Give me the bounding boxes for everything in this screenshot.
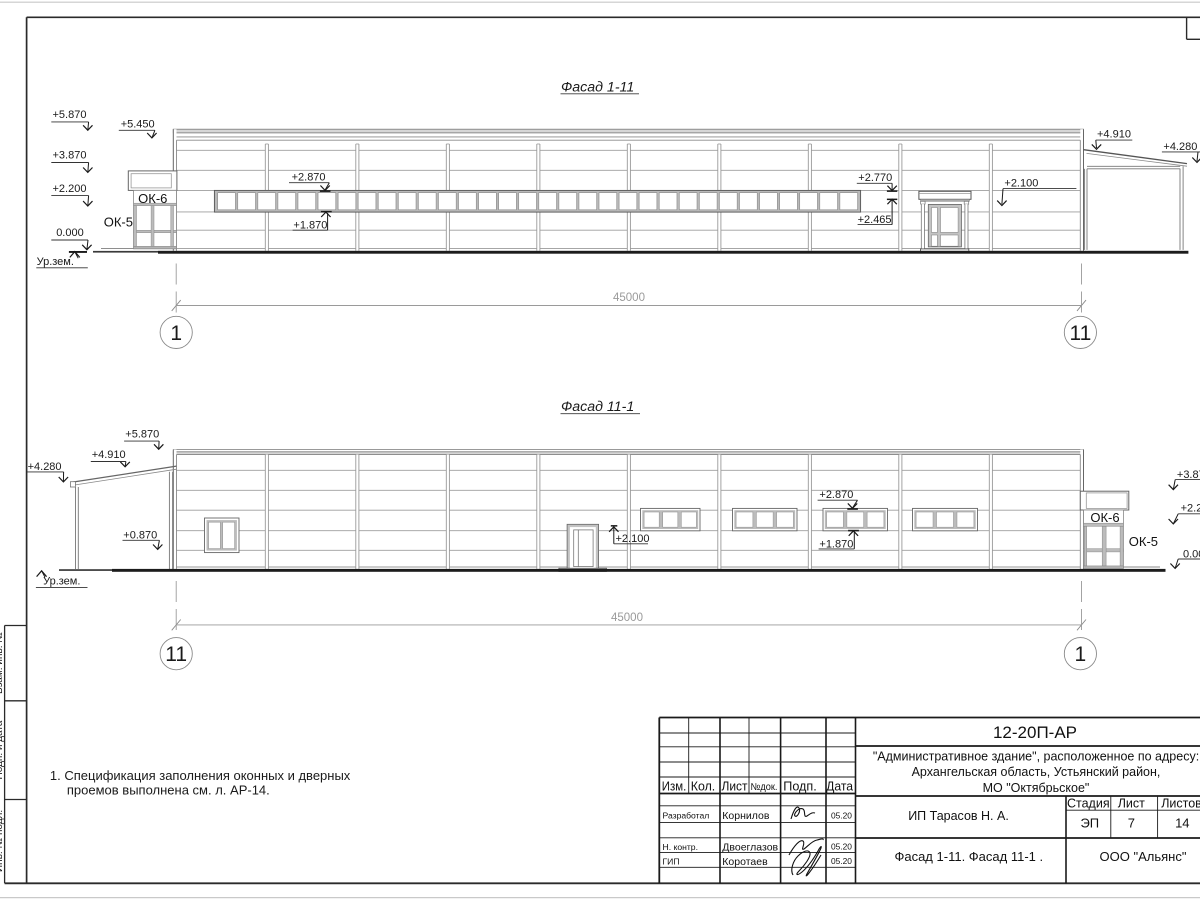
svg-text:+2.870: +2.870 xyxy=(292,171,326,183)
svg-text:1: 1 xyxy=(170,322,182,345)
svg-text:Коротаев: Коротаев xyxy=(722,856,768,868)
svg-text:Ур.зем.: Ур.зем. xyxy=(43,576,80,588)
svg-text:Инв. № подл.: Инв. № подл. xyxy=(0,810,5,872)
svg-text:Фасад 1-11: Фасад 1-11 xyxy=(561,79,634,95)
svg-text:0.000: 0.000 xyxy=(56,227,84,239)
svg-text:+4.910: +4.910 xyxy=(92,449,126,461)
svg-text:+3.870: +3.870 xyxy=(53,150,87,162)
svg-text:+4.910: +4.910 xyxy=(1097,129,1131,141)
svg-text:+1.870: +1.870 xyxy=(293,219,327,231)
svg-text:ЭП: ЭП xyxy=(1080,816,1099,831)
svg-text:45000: 45000 xyxy=(613,292,645,304)
svg-text:+5.870: +5.870 xyxy=(125,429,159,441)
svg-text:Двоеглазов: Двоеглазов xyxy=(722,842,778,854)
svg-text:ГИП: ГИП xyxy=(663,856,680,866)
svg-text:ОК-6: ОК-6 xyxy=(138,191,167,206)
svg-text:Фасад 11-1: Фасад 11-1 xyxy=(561,399,634,415)
svg-text:+5.450: +5.450 xyxy=(121,119,155,131)
svg-text:Изм.: Изм. xyxy=(662,778,687,793)
svg-text:ОК-5: ОК-5 xyxy=(1129,534,1158,549)
svg-text:14: 14 xyxy=(1175,816,1189,831)
svg-text:+4.280: +4.280 xyxy=(28,461,62,473)
svg-text:05.20: 05.20 xyxy=(831,811,852,821)
svg-text:Взам. инв. №: Взам. инв. № xyxy=(0,632,5,694)
svg-text:+2.100: +2.100 xyxy=(1004,178,1038,190)
svg-text:Фасад 1-11. Фасад 11-1 .: Фасад 1-11. Фасад 11-1 . xyxy=(894,849,1043,864)
svg-text:+2.465: +2.465 xyxy=(858,214,892,226)
svg-text:+0.870: +0.870 xyxy=(123,530,157,542)
svg-text:+2.870: +2.870 xyxy=(819,489,853,501)
svg-text:№док.: №док. xyxy=(751,782,778,793)
svg-text:Подп. и дата: Подп. и дата xyxy=(0,720,5,779)
svg-text:Разработал: Разработал xyxy=(663,811,710,821)
svg-text:1. Спецификация заполнения око: 1. Спецификация заполнения оконных и две… xyxy=(50,768,351,783)
svg-text:+2.770: +2.770 xyxy=(858,172,892,184)
svg-text:45000: 45000 xyxy=(611,612,643,624)
svg-text:1: 1 xyxy=(1075,643,1087,666)
svg-text:Стадия: Стадия xyxy=(1067,796,1110,810)
svg-text:"Административное здание", рас: "Административное здание", расположенное… xyxy=(873,749,1199,763)
svg-text:+2.100: +2.100 xyxy=(616,533,650,545)
svg-text:+4.280: +4.280 xyxy=(1163,141,1197,153)
svg-text:МО "Октябрьское": МО "Октябрьское" xyxy=(983,781,1090,795)
svg-text:ОК-6: ОК-6 xyxy=(1090,510,1119,525)
svg-text:+2.200: +2.200 xyxy=(53,183,87,195)
svg-text:05.20: 05.20 xyxy=(831,856,852,866)
svg-text:05.20: 05.20 xyxy=(831,842,852,852)
svg-text:Листов: Листов xyxy=(1161,796,1200,810)
svg-text:7: 7 xyxy=(1128,816,1135,831)
svg-text:Ур.зем.: Ур.зем. xyxy=(37,256,74,268)
svg-text:проемов выполнена см. л. АР-14: проемов выполнена см. л. АР-14. xyxy=(67,782,270,797)
svg-text:Дата: Дата xyxy=(826,778,854,793)
svg-text:ООО "Альянс": ООО "Альянс" xyxy=(1100,849,1187,864)
svg-text:12-20П-АР: 12-20П-АР xyxy=(993,723,1077,742)
svg-text:ОК-5: ОК-5 xyxy=(104,214,133,229)
svg-text:+5.870: +5.870 xyxy=(53,109,87,121)
svg-text:Лист: Лист xyxy=(722,778,748,793)
svg-text:+2.200: +2.200 xyxy=(1181,503,1200,515)
svg-text:Корнилов: Корнилов xyxy=(722,810,770,822)
svg-text:Подп.: Подп. xyxy=(783,778,817,793)
svg-text:11: 11 xyxy=(165,643,187,666)
svg-text:ИП Тарасов Н. А.: ИП Тарасов Н. А. xyxy=(908,809,1009,823)
svg-text:Н. контр.: Н. контр. xyxy=(663,842,698,852)
svg-text:11: 11 xyxy=(1069,322,1091,345)
svg-text:Лист: Лист xyxy=(1118,796,1145,810)
svg-text:Архангельская область, Устьянс: Архангельская область, Устьянский район, xyxy=(912,765,1161,779)
svg-text:Кол.: Кол. xyxy=(691,778,716,793)
